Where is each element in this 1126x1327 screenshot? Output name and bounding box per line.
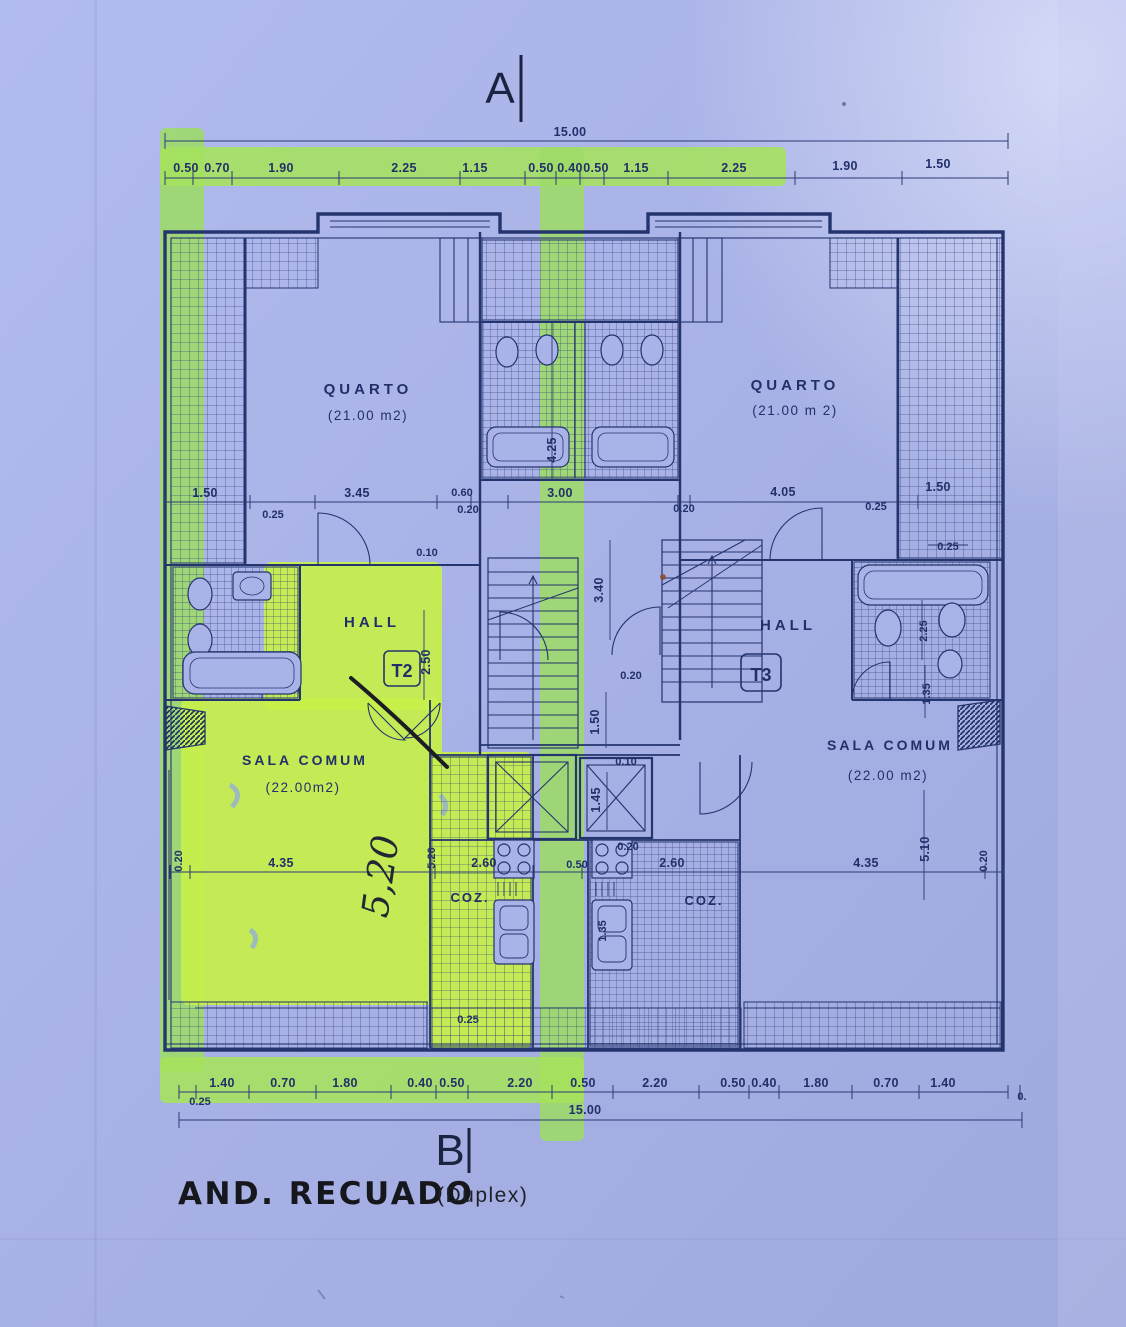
dim-label: 0.40: [407, 1076, 433, 1090]
ink-speck: [842, 102, 846, 106]
section-marker-a: A: [485, 64, 515, 113]
drawing-title-suffix: (Duplex): [437, 1184, 528, 1207]
dim-label: 3.45: [344, 486, 370, 500]
dim-label: 15.00: [554, 125, 587, 139]
dim-label: 0.25: [457, 1014, 478, 1026]
fold-line-horizontal: [0, 1238, 1126, 1240]
floor-plan-drawing: 15.00 0.50 0.70 1.90 2.25 1.15 0.50 0.40…: [0, 0, 1126, 1327]
room-label-quarto-right: QUARTO: [751, 377, 840, 394]
dim-label: 0.20: [978, 850, 990, 871]
dim-label: 2.60: [659, 856, 685, 870]
dim-label: 1.50: [925, 157, 951, 171]
dim-label: 5.20: [426, 847, 438, 868]
dim-label: 5.10: [918, 836, 932, 862]
bidet-icon: [641, 335, 663, 365]
dim-label: 2.60: [471, 856, 497, 870]
dim-label: 0.50: [173, 161, 199, 175]
room-area-quarto-left: (21.00 m2): [328, 408, 408, 423]
terrace-hatch-top-left: [171, 238, 246, 563]
room-label-hall-left: HALL: [344, 614, 400, 631]
dim-label: 0.50: [528, 161, 554, 175]
ink-speck: [660, 574, 666, 580]
section-marker-b: B: [435, 1126, 464, 1175]
dim-label: 4.25: [545, 437, 559, 463]
room-area-sala-left: (22.00m2): [265, 780, 340, 795]
room-area-quarto-right: (21.00 m 2): [752, 403, 838, 418]
dim-label: 1.40: [209, 1076, 235, 1090]
dim-label: 0.50: [566, 859, 587, 871]
dim-label: 0.10: [615, 756, 636, 768]
toilet-icon: [496, 337, 518, 367]
balcony-hatch-bottom-left: [171, 1002, 427, 1048]
toilet-icon: [939, 603, 965, 637]
dim-label: 1.35: [921, 683, 933, 704]
bidet-icon: [188, 624, 212, 656]
dim-label: 1.15: [462, 161, 488, 175]
dim-label: 0.70: [270, 1076, 296, 1090]
drawing-title: AND. RECUADO: [178, 1176, 474, 1212]
dim-label: 0.60: [451, 487, 472, 499]
dim-label: 0.20: [620, 670, 641, 682]
terrace-hatch-top-right: [897, 238, 1003, 558]
dim-label: 0.50: [439, 1076, 465, 1090]
dim-label: 0.20: [173, 850, 185, 871]
dim-label: 1.40: [930, 1076, 956, 1090]
dim-label: 0.40: [751, 1076, 777, 1090]
dim-label: 0.20: [673, 503, 694, 515]
bidet-icon: [536, 335, 558, 365]
dim-label: 0.50: [583, 161, 609, 175]
dim-label: 1.90: [832, 159, 858, 173]
toilet-icon: [188, 578, 212, 610]
dim-label: 2.50: [419, 649, 433, 675]
hatch-strip-right: [830, 238, 898, 288]
dim-label: 2.20: [642, 1076, 668, 1090]
dim-label: 0.25: [262, 509, 283, 521]
dim-label: 0.25: [865, 501, 886, 513]
dim-label: 0.20: [457, 504, 478, 516]
dim-label: 4.35: [268, 856, 294, 870]
room-label-coz-left: COZ.: [450, 890, 489, 905]
fold-line-vertical: [94, 0, 97, 1327]
dim-label: 0.25: [937, 541, 958, 553]
dim-label: 15.00: [569, 1103, 602, 1117]
column-left: [165, 706, 205, 750]
dim-label: 0.40: [557, 161, 583, 175]
dim-label: 0.25: [189, 1096, 210, 1108]
dim-label: 4.35: [853, 856, 879, 870]
hatch-strip-left: [246, 238, 318, 288]
room-label-sala-right: SALA COMUM: [827, 737, 953, 753]
balcony-hatch-bottom-right: [744, 1002, 1001, 1048]
dim-label: 0.: [1017, 1091, 1026, 1103]
sink-icon: [875, 610, 901, 646]
bidet-icon: [938, 650, 962, 678]
dim-label: 0.20: [617, 841, 638, 853]
room-label-hall-right: HALL: [760, 617, 816, 634]
dim-label: 1.80: [803, 1076, 829, 1090]
dim-label: 3.00: [547, 486, 573, 500]
dim-label: 2.25: [721, 161, 747, 175]
dim-label: 3.40: [592, 577, 606, 603]
dim-label: 1.35: [597, 920, 609, 941]
duct-hatch-center: [482, 240, 678, 320]
toilet-icon: [601, 335, 623, 365]
dim-label: 1.50: [925, 480, 951, 494]
dim-label: 4.05: [770, 485, 796, 499]
dim-label: 0.70: [873, 1076, 899, 1090]
dim-label: 2.25: [391, 161, 417, 175]
column-right: [958, 700, 1000, 750]
unit-tag-t3: T3: [750, 665, 771, 685]
dim-label: 1.45: [589, 787, 603, 813]
room-label-sala-left: SALA COMUM: [242, 752, 368, 768]
dim-label: 0.10: [416, 547, 437, 559]
unit-tag-t2: T2: [391, 661, 412, 681]
room-label-coz-right: COZ.: [684, 893, 723, 908]
dim-label: 0.50: [570, 1076, 596, 1090]
dim-label: 1.15: [623, 161, 649, 175]
room-label-quarto-left: QUARTO: [324, 381, 413, 398]
dim-label: 2.25: [918, 620, 930, 641]
dim-label: 1.80: [332, 1076, 358, 1090]
dim-label: 1.90: [268, 161, 294, 175]
dim-label: 2.20: [507, 1076, 533, 1090]
dim-label: 1.50: [588, 709, 602, 735]
scanned-floor-plan: 15.00 0.50 0.70 1.90 2.25 1.15 0.50 0.40…: [0, 0, 1126, 1327]
dim-label: 0.70: [204, 161, 230, 175]
dim-label: 0.50: [720, 1076, 746, 1090]
room-area-sala-right: (22.00 m2): [848, 768, 928, 783]
dim-label: 1.50: [192, 486, 218, 500]
